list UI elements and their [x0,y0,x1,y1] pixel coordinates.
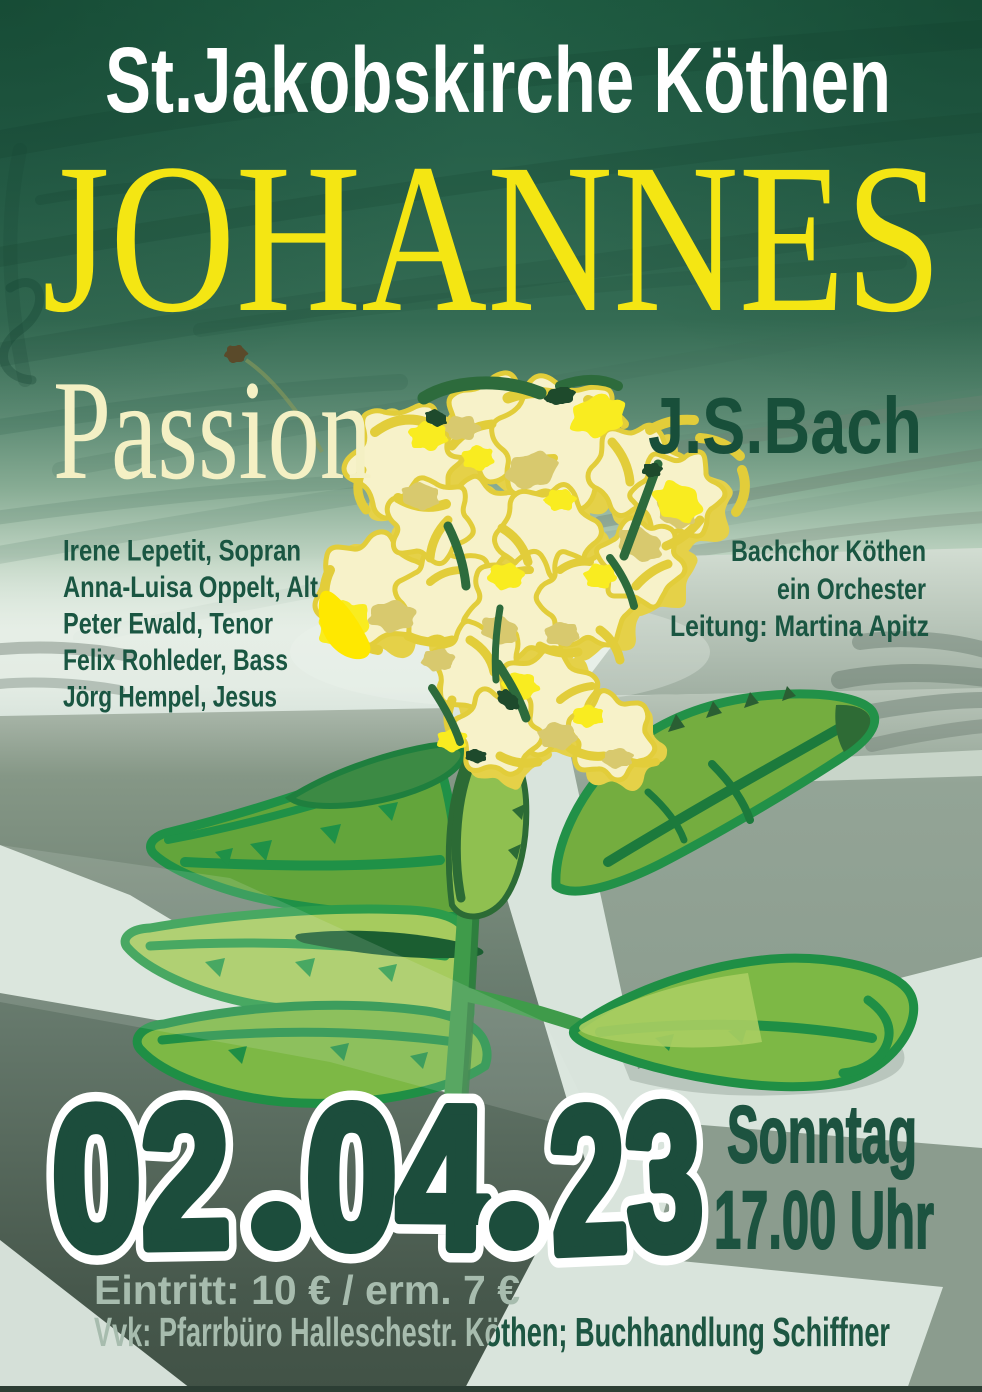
svg-text:Anna-Luisa Oppelt, Alt: Anna-Luisa Oppelt, Alt [63,571,318,604]
svg-text:Jörg Hempel, Jesus: Jörg Hempel, Jesus [63,681,277,714]
svg-text:Sonntag: Sonntag [727,1090,917,1180]
svg-text:St.Jakobskirche Köthen: St.Jakobskirche Köthen [105,28,891,132]
svg-text:Felix Rohleder, Bass: Felix Rohleder, Bass [63,644,288,677]
svg-text:04: 04 [305,1063,489,1291]
svg-text:Irene Lepetit, Sopran: Irene Lepetit, Sopran [63,535,301,568]
svg-text:17.00 Uhr: 17.00 Uhr [714,1175,934,1266]
svg-text:02: 02 [50,1063,232,1292]
svg-text:Bachchor Köthen: Bachchor Köthen [731,535,926,568]
svg-text:Eintritt: 10 € / erm. 7 €: Eintritt: 10 € / erm. 7 € [94,1267,520,1313]
svg-text:Peter Ewald, Tenor: Peter Ewald, Tenor [63,608,273,641]
svg-text:23: 23 [545,1061,707,1297]
svg-text:J.S.Bach: J.S.Bach [648,381,922,470]
svg-text:ein Orchester: ein Orchester [777,573,926,606]
svg-text:JOHANNES: JOHANNES [42,120,942,357]
svg-text:Passion: Passion [53,351,372,509]
svg-text:Leitung: Martina Apitz: Leitung: Martina Apitz [670,610,929,643]
